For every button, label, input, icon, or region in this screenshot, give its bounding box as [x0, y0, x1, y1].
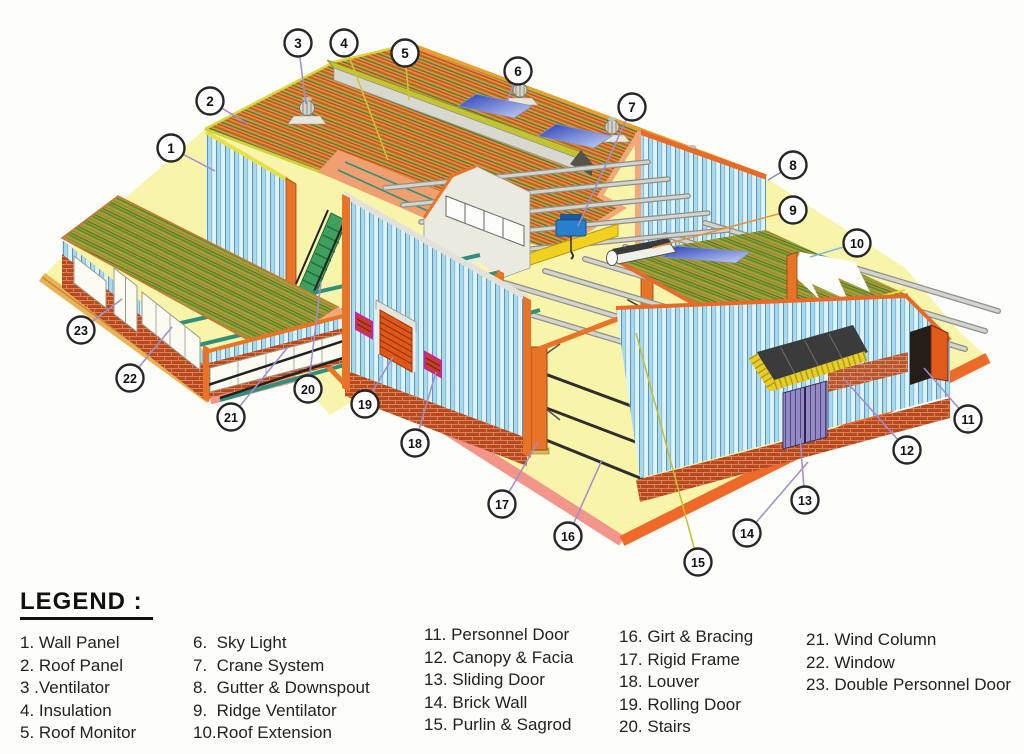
legend-item: 22. Window — [806, 652, 1011, 675]
callout-number: 11 — [961, 413, 974, 427]
legend-item: 3 .Ventilator — [20, 677, 136, 700]
legend-item: 5. Roof Monitor — [20, 722, 136, 745]
annex-corner-column — [203, 345, 209, 402]
callout-number: 8 — [789, 158, 797, 173]
legend-column-1: 1. Wall Panel2. Roof Panel3 .Ventilator4… — [20, 632, 136, 745]
legend: LEGEND : 1. Wall Panel2. Roof Panel3 .Ve… — [0, 580, 1024, 754]
callout-number: 18 — [408, 437, 422, 451]
callout-number: 3 — [294, 36, 302, 51]
jamb-column — [523, 296, 531, 458]
callout-number: 23 — [74, 324, 88, 338]
personnel-door — [910, 325, 948, 385]
callout-number: 19 — [358, 398, 372, 412]
callout-number: 14 — [740, 527, 754, 541]
callout-number: 9 — [789, 203, 797, 218]
callout-number: 5 — [401, 46, 409, 61]
legend-item: 9. Ridge Ventilator — [193, 700, 370, 723]
sliding-door — [783, 381, 827, 449]
legend-heading: LEGEND : — [20, 588, 153, 620]
legend-item: 12. Canopy & Facia — [424, 647, 573, 670]
legend-item: 15. Purlin & Sagrod — [424, 714, 573, 737]
legend-column-3: 11. Personnel Door12. Canopy & Facia13. … — [424, 624, 573, 737]
building-diagram-figure: 1234567891011121314151617181920212223 — [0, 0, 1024, 580]
callout-number: 4 — [340, 36, 348, 51]
page: 1234567891011121314151617181920212223 LE… — [0, 0, 1024, 754]
legend-item: 20. Stairs — [619, 716, 753, 739]
callout-8-gutter-downspout: 8 — [768, 152, 807, 181]
callout-number: 10 — [850, 237, 864, 251]
callout-number: 20 — [301, 383, 315, 397]
legend-column-2: 6. Sky Light7. Crane System8. Gutter & D… — [193, 632, 370, 745]
legend-item: 13. Sliding Door — [424, 669, 573, 692]
legend-item: 6. Sky Light — [193, 632, 370, 655]
legend-item: 1. Wall Panel — [20, 632, 136, 655]
jamb-column — [342, 194, 350, 392]
callout-number: 2 — [206, 94, 214, 109]
legend-item: 11. Personnel Door — [424, 624, 573, 647]
callout-2-roof-panel: 2 — [197, 88, 249, 125]
legend-item: 19. Rolling Door — [619, 694, 753, 717]
legend-item: 4. Insulation — [20, 700, 136, 723]
callout-number: 7 — [628, 100, 636, 115]
callout-number: 17 — [495, 498, 509, 512]
callout-number: 12 — [900, 444, 914, 458]
legend-column-5: 21. Wind Column22. Window23. Double Pers… — [806, 629, 1011, 697]
callout-number: 16 — [561, 530, 575, 544]
legend-item: 8. Gutter & Downspout — [193, 677, 370, 700]
legend-item: 2. Roof Panel — [20, 655, 136, 678]
legend-item: 18. Louver — [619, 671, 753, 694]
isometric-building-illustration: 1234567891011121314151617181920212223 — [0, 0, 1024, 580]
legend-item: 10.Roof Extension — [193, 722, 370, 745]
callout-number: 22 — [123, 372, 137, 386]
callout-number: 13 — [798, 494, 812, 508]
callout-number: 15 — [691, 556, 705, 570]
legend-item: 16. Girt & Bracing — [619, 626, 753, 649]
callout-number: 1 — [167, 141, 175, 156]
legend-item: 17. Rigid Frame — [619, 649, 753, 672]
legend-item: 14. Brick Wall — [424, 692, 573, 715]
callout-number: 6 — [514, 64, 522, 79]
legend-item: 7. Crane System — [193, 655, 370, 678]
legend-item: 21. Wind Column — [806, 629, 1011, 652]
legend-column-4: 16. Girt & Bracing17. Rigid Frame18. Lou… — [619, 626, 753, 739]
callout-number: 21 — [224, 411, 238, 425]
legend-item: 23. Double Personnel Door — [806, 674, 1011, 697]
